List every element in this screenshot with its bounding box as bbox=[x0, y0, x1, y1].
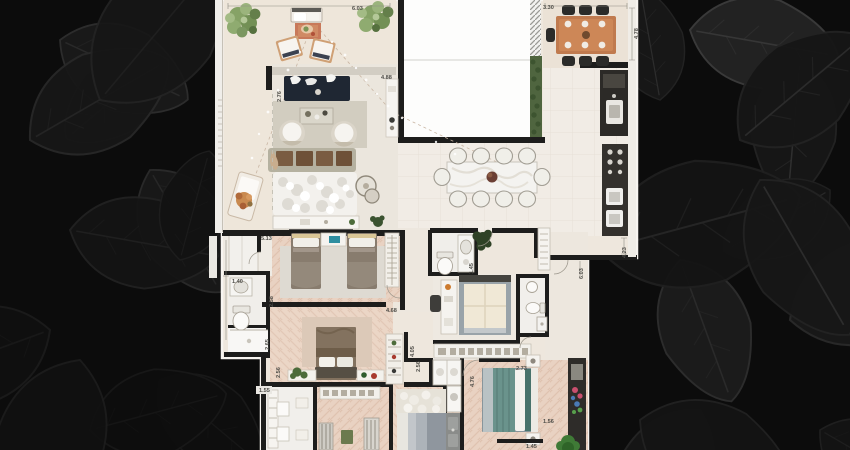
svg-text:5.13: 5.13 bbox=[261, 236, 272, 242]
svg-text:6.03: 6.03 bbox=[579, 268, 585, 279]
svg-text:2.56: 2.56 bbox=[276, 367, 282, 378]
svg-text:1.55: 1.55 bbox=[259, 388, 270, 394]
svg-text:4.78: 4.78 bbox=[634, 28, 640, 39]
svg-text:4.05: 4.05 bbox=[410, 346, 416, 357]
svg-text:3.30: 3.30 bbox=[543, 5, 554, 11]
svg-text:4.76: 4.76 bbox=[470, 376, 476, 387]
svg-text:1.40: 1.40 bbox=[232, 279, 243, 285]
svg-text:4.23: 4.23 bbox=[622, 247, 628, 258]
svg-text:4.88: 4.88 bbox=[381, 75, 392, 81]
svg-text:1.56: 1.56 bbox=[543, 419, 554, 425]
svg-text:2.73: 2.73 bbox=[516, 366, 527, 372]
svg-text:2.76: 2.76 bbox=[277, 91, 283, 102]
svg-text:2.58: 2.58 bbox=[269, 296, 275, 307]
svg-text:1.45: 1.45 bbox=[469, 263, 475, 274]
svg-text:2.65: 2.65 bbox=[265, 339, 271, 350]
svg-text:6.03: 6.03 bbox=[352, 6, 363, 12]
svg-text:1.45: 1.45 bbox=[526, 444, 537, 450]
svg-text:2.56: 2.56 bbox=[416, 361, 422, 372]
svg-text:4.68: 4.68 bbox=[386, 308, 397, 314]
